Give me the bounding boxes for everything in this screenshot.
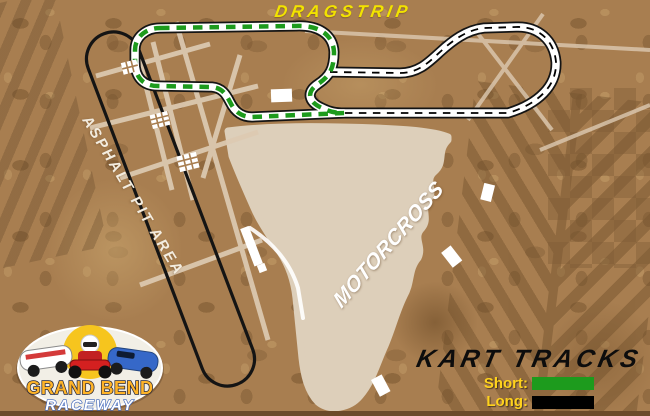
kart-infield-building — [271, 89, 292, 103]
legend-title: KART TRACKS — [414, 345, 644, 374]
legend-short-label: Short: — [454, 375, 528, 392]
logo-title: GRAND BEND — [26, 378, 153, 398]
track-marker — [480, 183, 495, 202]
short-track-swatch — [532, 377, 594, 390]
legend-long-label: Long: — [454, 393, 528, 410]
track-marker — [441, 245, 462, 267]
logo-subtitle: RACEWAY — [45, 397, 135, 414]
raceway-logo: GRAND BEND RACEWAY — [12, 318, 167, 414]
raceway-map: DRAGSTRIP ASPHALT PIT AREA MOTORCROSS KA… — [0, 0, 650, 416]
legend-swatches — [532, 377, 598, 411]
long-track-swatch — [532, 396, 594, 409]
dragstrip-label: DRAGSTRIP — [273, 2, 413, 22]
